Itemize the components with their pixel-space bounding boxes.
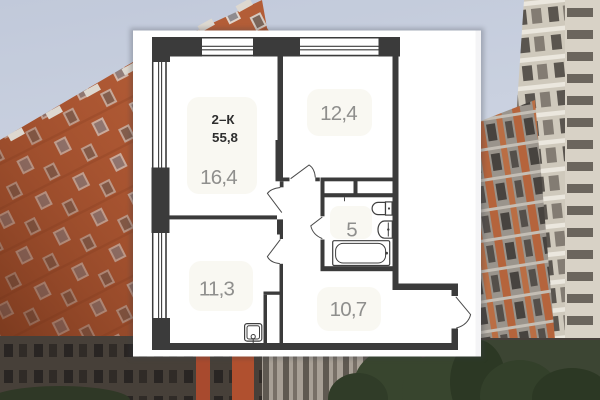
svg-text:11,3: 11,3 xyxy=(199,278,235,301)
svg-text:55,8: 55,8 xyxy=(212,130,238,145)
svg-text:12,4: 12,4 xyxy=(320,102,357,125)
svg-text:2–К: 2–К xyxy=(212,112,236,127)
svg-text:10,7: 10,7 xyxy=(330,298,367,321)
svg-text:16,4: 16,4 xyxy=(200,166,237,189)
svg-text:5: 5 xyxy=(346,219,357,242)
